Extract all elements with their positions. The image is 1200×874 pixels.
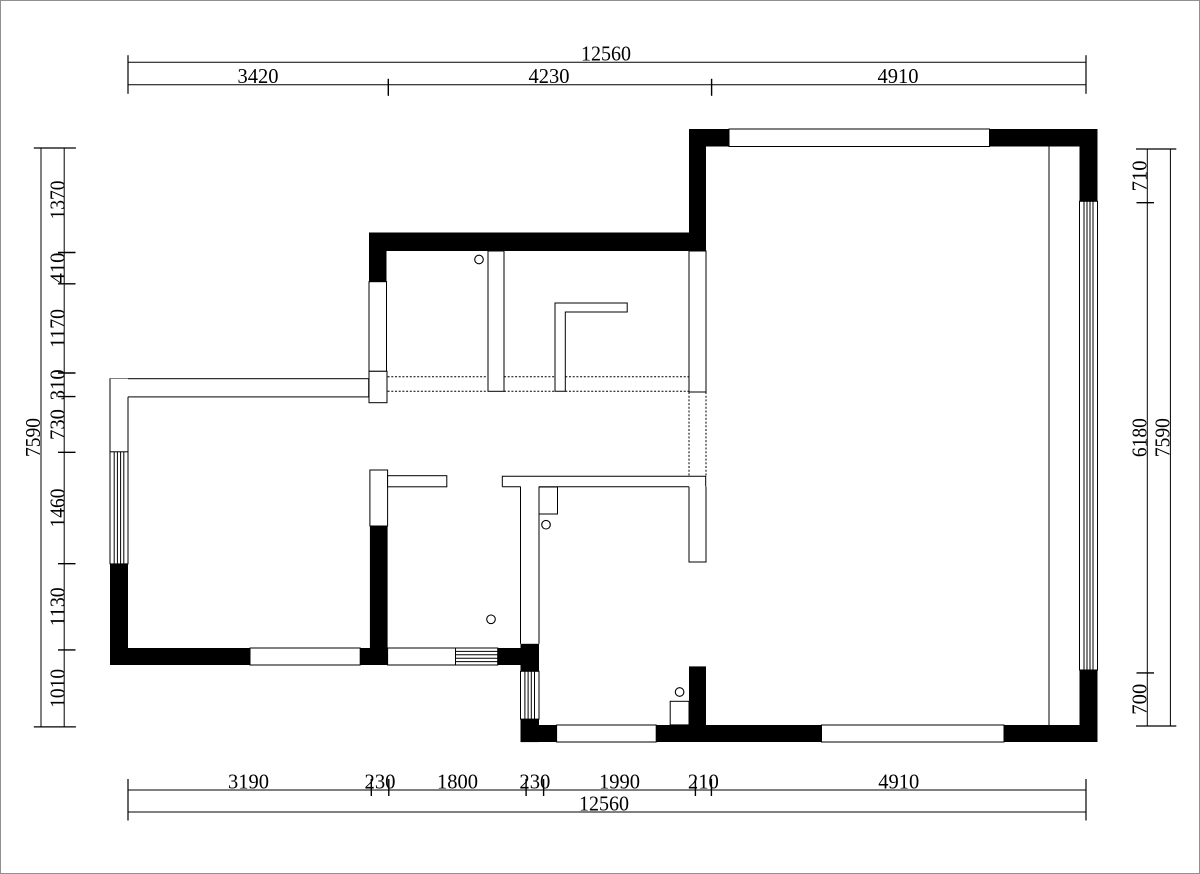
svg-text:1170: 1170 [46,309,70,348]
svg-text:230: 230 [365,770,396,794]
svg-text:1990: 1990 [599,770,640,794]
svg-text:7590: 7590 [21,418,45,457]
svg-text:230: 230 [519,770,550,794]
svg-text:7590: 7590 [1151,418,1175,457]
svg-text:12560: 12560 [581,42,631,66]
svg-text:1010: 1010 [46,669,70,708]
svg-text:6180: 6180 [1128,418,1152,457]
svg-text:410: 410 [46,253,70,284]
svg-text:730: 730 [46,409,70,440]
svg-text:710: 710 [1128,160,1152,191]
svg-text:1130: 1130 [46,587,70,626]
svg-text:4230: 4230 [529,64,570,88]
svg-text:3420: 3420 [238,64,279,88]
svg-text:700: 700 [1128,684,1152,715]
svg-text:210: 210 [688,770,719,794]
svg-text:1370: 1370 [46,181,70,220]
svg-text:1460: 1460 [46,489,70,528]
svg-text:1800: 1800 [437,770,478,794]
svg-text:4910: 4910 [878,770,919,794]
svg-text:3190: 3190 [228,770,269,794]
svg-text:12560: 12560 [579,791,629,815]
svg-text:4910: 4910 [878,64,919,88]
svg-text:310: 310 [46,369,70,400]
